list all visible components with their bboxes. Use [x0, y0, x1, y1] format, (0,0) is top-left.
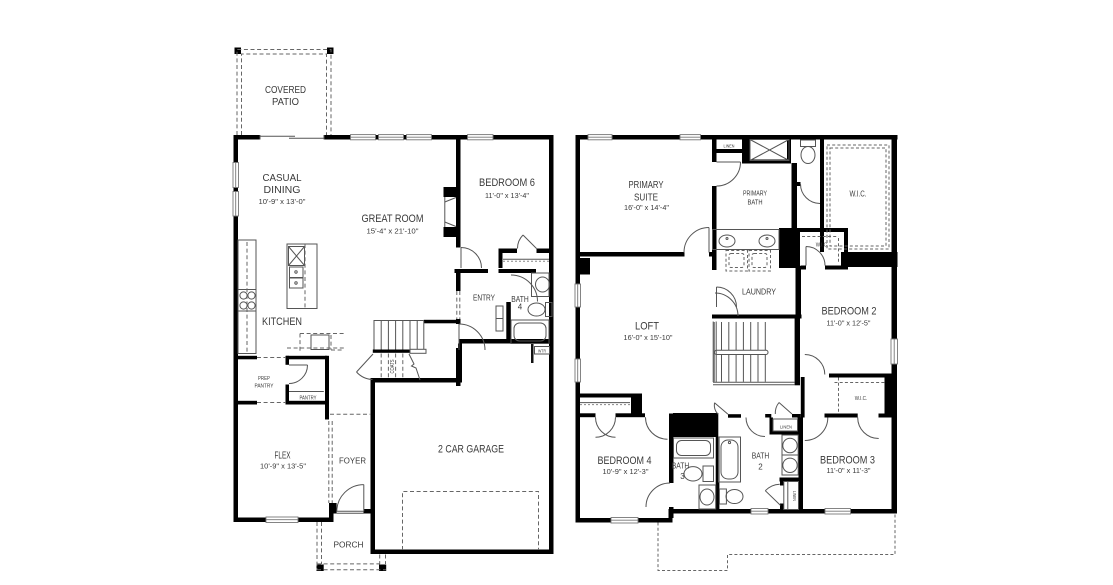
svg-text:LOFT: LOFT [635, 321, 659, 333]
svg-text:BEDROOM 2: BEDROOM 2 [822, 306, 877, 318]
svg-text:FLEX: FLEX [275, 450, 291, 462]
svg-text:BATH: BATH [752, 452, 770, 461]
svg-text:CASUAL: CASUAL [263, 172, 302, 184]
svg-text:BATH: BATH [748, 197, 763, 206]
svg-text:WTR: WTR [538, 349, 546, 354]
svg-text:COATS: COATS [390, 359, 396, 373]
svg-text:BEDROOM 4: BEDROOM 4 [598, 455, 652, 467]
svg-text:BATH: BATH [672, 462, 690, 471]
svg-text:11'-0" x 11'-3": 11'-0" x 11'-3" [827, 466, 871, 475]
svg-text:LINEN: LINEN [792, 491, 797, 501]
svg-text:16'-0" x 15'-10": 16'-0" x 15'-10" [624, 333, 673, 342]
svg-text:FOYER: FOYER [339, 457, 366, 466]
svg-text:3: 3 [680, 472, 685, 481]
svg-text:GREAT ROOM: GREAT ROOM [362, 213, 424, 225]
svg-text:W.I.C.: W.I.C. [850, 190, 867, 199]
svg-text:PORCH: PORCH [334, 541, 364, 550]
svg-text:2 CAR GARAGE: 2 CAR GARAGE [438, 444, 504, 456]
svg-text:ENTRY: ENTRY [473, 294, 496, 303]
svg-text:PRIMARY: PRIMARY [743, 188, 767, 197]
svg-text:DINING: DINING [264, 184, 301, 196]
svg-text:PANTRY: PANTRY [300, 396, 317, 402]
svg-text:LINEN: LINEN [724, 144, 735, 149]
svg-text:15'-4" x 21'-10": 15'-4" x 21'-10" [367, 227, 419, 236]
svg-text:PATIO: PATIO [272, 96, 299, 108]
svg-text:PANTRY: PANTRY [255, 384, 274, 390]
svg-text:10'-9" x 12'-3": 10'-9" x 12'-3" [603, 467, 649, 476]
svg-text:LINEN: LINEN [780, 425, 792, 430]
svg-text:2: 2 [758, 462, 763, 471]
svg-text:4: 4 [518, 303, 523, 312]
svg-text:BEDROOM 3: BEDROOM 3 [820, 454, 875, 466]
svg-text:W.I.C.: W.I.C. [816, 243, 829, 249]
svg-text:PRIMARY: PRIMARY [629, 179, 664, 191]
svg-text:PREP: PREP [258, 376, 270, 382]
svg-text:W.I.C.: W.I.C. [855, 396, 868, 402]
svg-text:SUITE: SUITE [634, 192, 658, 204]
svg-text:11'-0" x 12'-5": 11'-0" x 12'-5" [827, 318, 871, 327]
svg-text:16'-0" x 14'-4": 16'-0" x 14'-4" [624, 203, 669, 212]
svg-text:BEDROOM 6: BEDROOM 6 [479, 177, 535, 189]
svg-text:LAUNDRY: LAUNDRY [742, 288, 777, 297]
svg-text:10'-9" x 13'-0": 10'-9" x 13'-0" [259, 197, 306, 206]
svg-text:11'-0" x 13'-4": 11'-0" x 13'-4" [485, 191, 529, 200]
svg-text:10'-9" x 13'-5": 10'-9" x 13'-5" [260, 462, 306, 471]
svg-text:KITCHEN: KITCHEN [262, 316, 302, 328]
svg-text:COVERED: COVERED [265, 84, 306, 96]
